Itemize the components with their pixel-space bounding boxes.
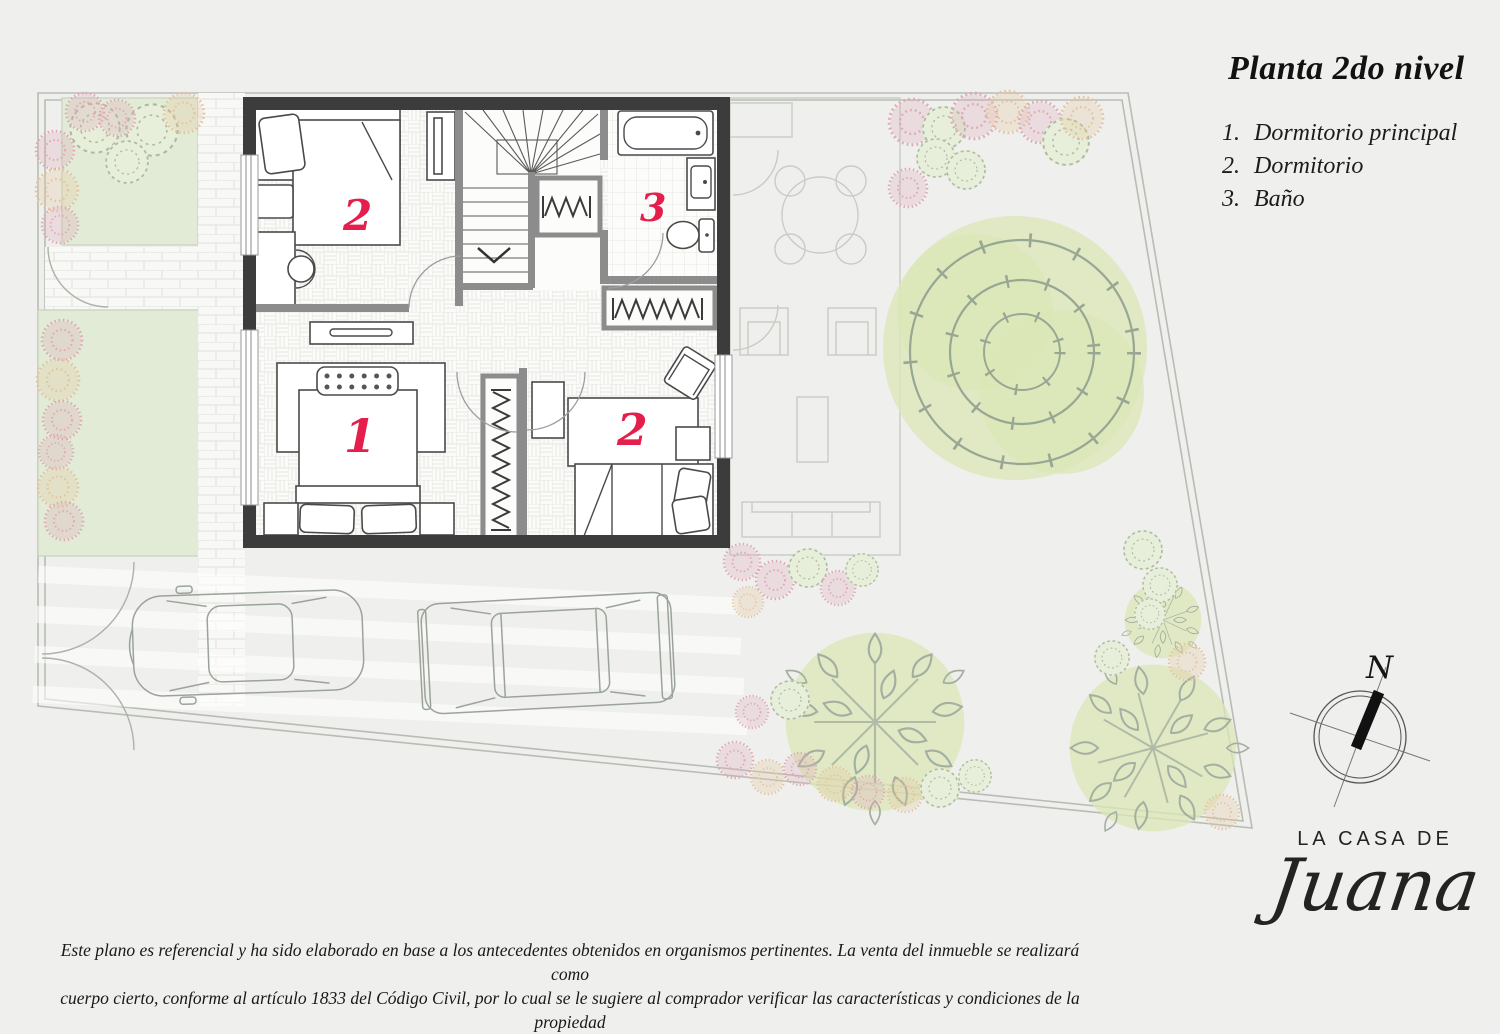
terrace-armchairs <box>740 308 876 355</box>
window-left-lower <box>241 330 258 505</box>
dresser <box>310 322 413 344</box>
pillow <box>362 504 417 534</box>
side-table <box>676 427 710 460</box>
nightstand <box>420 503 454 535</box>
window-right <box>715 355 732 458</box>
terrace-dining-set <box>775 166 866 264</box>
nightstand <box>256 185 293 218</box>
room-label-bathroom: 3 <box>640 185 666 230</box>
legend-item-2: 2. Dormitorio <box>1222 153 1457 180</box>
spiral-tree <box>883 216 1147 480</box>
toilet <box>667 219 714 252</box>
terrace-planter <box>727 103 792 137</box>
leafy-tree-2 <box>1031 633 1268 873</box>
terrace-sofa <box>742 502 880 537</box>
bed-bench <box>317 367 398 395</box>
compass: N <box>1290 650 1430 807</box>
legend-item-1: 1. Dormitorio principal <box>1222 120 1457 147</box>
car-sedan <box>128 580 365 706</box>
terrace <box>727 98 900 555</box>
pillow <box>672 496 711 535</box>
room-label-bedroom-bottom: 2 <box>616 405 648 456</box>
nightstand <box>264 503 298 535</box>
room-label-master: 1 <box>344 409 376 463</box>
pillow <box>300 504 355 534</box>
brand-logo: LA CASA DE Juana <box>1245 828 1500 923</box>
legend-item-3: 3. Baño <box>1222 186 1457 213</box>
closet-below-bath <box>604 288 715 328</box>
terrace-coffee-table <box>797 397 828 462</box>
legend-label: Baño <box>1254 186 1305 213</box>
window-left-upper <box>241 155 258 255</box>
disclaimer-text: Este plano es referencial y ha sido elab… <box>40 938 1100 1034</box>
legend-label: Dormitorio principal <box>1254 120 1457 147</box>
driveway <box>32 562 752 750</box>
brand-logo-script: Juana <box>1240 847 1500 923</box>
closet-by-stairs <box>537 178 600 235</box>
floor-plan: 2 1 2 3 <box>241 97 732 548</box>
wardrobe-center <box>483 376 519 540</box>
floorplan-sheet: { "header": { "title": "Planta 2do nivel… <box>0 0 1500 1004</box>
pillow <box>258 113 305 174</box>
legend-label: Dormitorio <box>1254 153 1363 180</box>
room-label-bedroom-top: 2 <box>342 191 372 240</box>
legend: 1. Dormitorio principal 2. Dormitorio 3.… <box>1222 120 1457 219</box>
page-title: Planta 2do nivel <box>1228 50 1465 88</box>
north-label: N <box>1365 650 1395 686</box>
leafy-trees <box>784 570 1269 873</box>
blanket-fold <box>296 486 420 503</box>
